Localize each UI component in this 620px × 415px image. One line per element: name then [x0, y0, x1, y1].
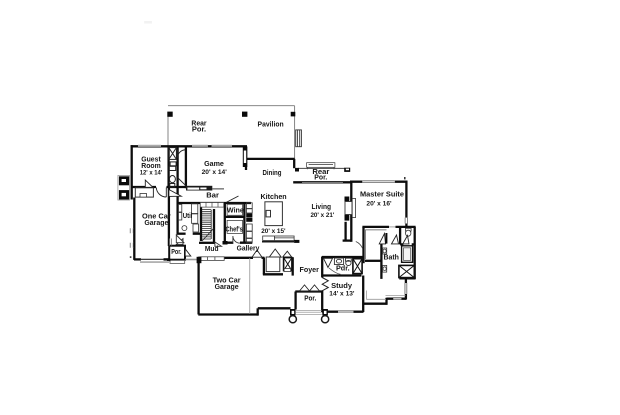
svg-text:Living: Living	[312, 202, 332, 211]
svg-text:Bath: Bath	[383, 252, 399, 261]
svg-text:Master Suite: Master Suite	[360, 190, 404, 199]
svg-text:20' x 15': 20' x 15'	[261, 228, 286, 235]
svg-text:20' x 21': 20' x 21'	[310, 212, 334, 219]
svg-text:Gallery: Gallery	[237, 243, 261, 252]
svg-text:Pdr.: Pdr.	[336, 264, 350, 273]
svg-text:Foyer: Foyer	[300, 265, 320, 274]
svg-text:Pavilion: Pavilion	[258, 120, 285, 129]
svg-text:20' x 16': 20' x 16'	[366, 201, 392, 208]
svg-text:Por.: Por.	[171, 247, 181, 256]
svg-text:Game: Game	[204, 159, 224, 168]
svg-text:20' x 14': 20' x 14'	[202, 169, 228, 176]
svg-text:Kitchen: Kitchen	[261, 192, 288, 201]
svg-text:Study: Study	[331, 281, 353, 290]
svg-text:Chef's: Chef's	[225, 224, 243, 233]
svg-text:14' x 13': 14' x 13'	[329, 290, 355, 297]
svg-text:Room: Room	[141, 161, 161, 170]
svg-text:Mud: Mud	[205, 244, 219, 253]
svg-text:Util: Util	[183, 211, 193, 220]
svg-text:Garage: Garage	[215, 282, 239, 291]
svg-text:12' x 14': 12' x 14'	[140, 170, 163, 177]
svg-text:Por.: Por.	[314, 173, 327, 182]
svg-text:Bar: Bar	[206, 191, 219, 200]
svg-text:Dining: Dining	[263, 168, 282, 177]
svg-text:Por.: Por.	[192, 125, 206, 134]
svg-text:Por.: Por.	[304, 293, 316, 302]
svg-text:Wine: Wine	[227, 206, 244, 215]
svg-text:Garage: Garage	[144, 218, 168, 227]
